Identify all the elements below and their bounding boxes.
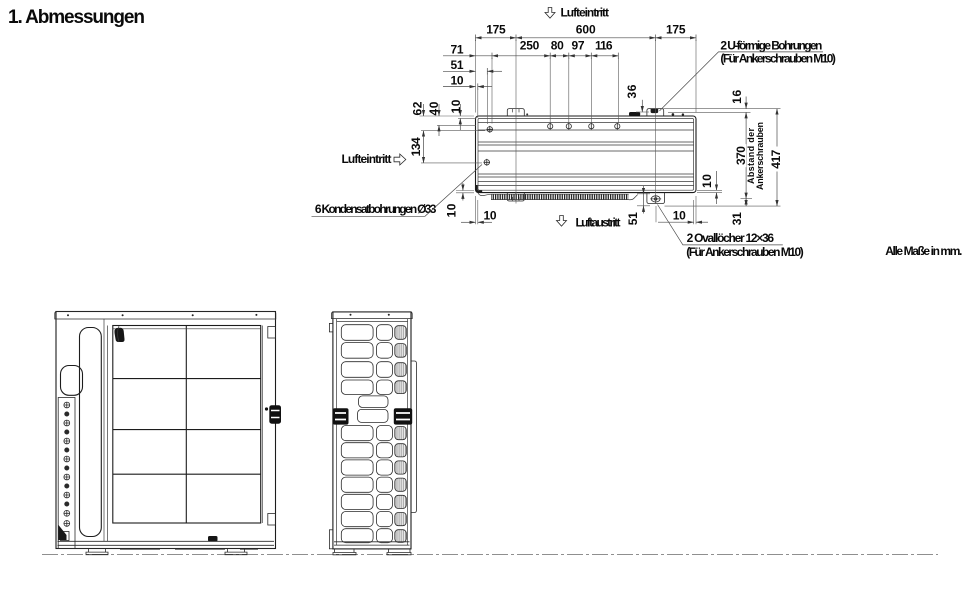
svg-text:10: 10	[449, 99, 463, 113]
svg-text:116: 116	[595, 38, 613, 52]
svg-text:80: 80	[551, 38, 564, 52]
svg-text:6 Kondensatbohrungen Ø33: 6 Kondensatbohrungen Ø33	[315, 202, 437, 216]
svg-text:Luftaustritt: Luftaustritt	[576, 215, 621, 229]
svg-text:250: 250	[520, 38, 540, 52]
svg-text:10: 10	[673, 208, 686, 222]
svg-text:2 Ovallöcher 12×36: 2 Ovallöcher 12×36	[687, 231, 775, 245]
svg-text:10: 10	[484, 209, 497, 223]
svg-text:600: 600	[576, 23, 596, 37]
svg-text:Alle Maße in mm.: Alle Maße in mm.	[885, 244, 962, 258]
svg-text:31: 31	[730, 212, 744, 225]
svg-text:175: 175	[666, 23, 686, 37]
svg-text:(Für Ankerschrauben M10): (Für Ankerschrauben M10)	[686, 245, 804, 259]
svg-text:10: 10	[700, 174, 714, 188]
svg-text:71: 71	[451, 43, 464, 57]
svg-text:51: 51	[626, 212, 640, 225]
svg-text:10: 10	[451, 73, 464, 87]
svg-text:36: 36	[625, 84, 639, 98]
svg-text:Ankerschrauben: Ankerschrauben	[755, 122, 765, 190]
svg-text:134: 134	[409, 137, 423, 156]
svg-text:40: 40	[427, 101, 441, 115]
svg-text:62: 62	[411, 101, 425, 115]
svg-text:1. Abmessungen: 1. Abmessungen	[8, 7, 145, 28]
svg-text:417: 417	[769, 149, 783, 168]
svg-text:(Für Ankerschrauben M10): (Für Ankerschrauben M10)	[720, 52, 836, 66]
svg-text:10: 10	[445, 203, 459, 217]
svg-text:Lufteintritt: Lufteintritt	[561, 6, 610, 20]
svg-text:51: 51	[451, 58, 464, 72]
svg-text:175: 175	[486, 23, 506, 37]
svg-text:16: 16	[730, 89, 744, 103]
svg-text:97: 97	[572, 38, 585, 52]
svg-text:2 U-förmige Bohrungen: 2 U-förmige Bohrungen	[720, 39, 822, 53]
svg-text:Lufteintritt: Lufteintritt	[342, 152, 392, 166]
